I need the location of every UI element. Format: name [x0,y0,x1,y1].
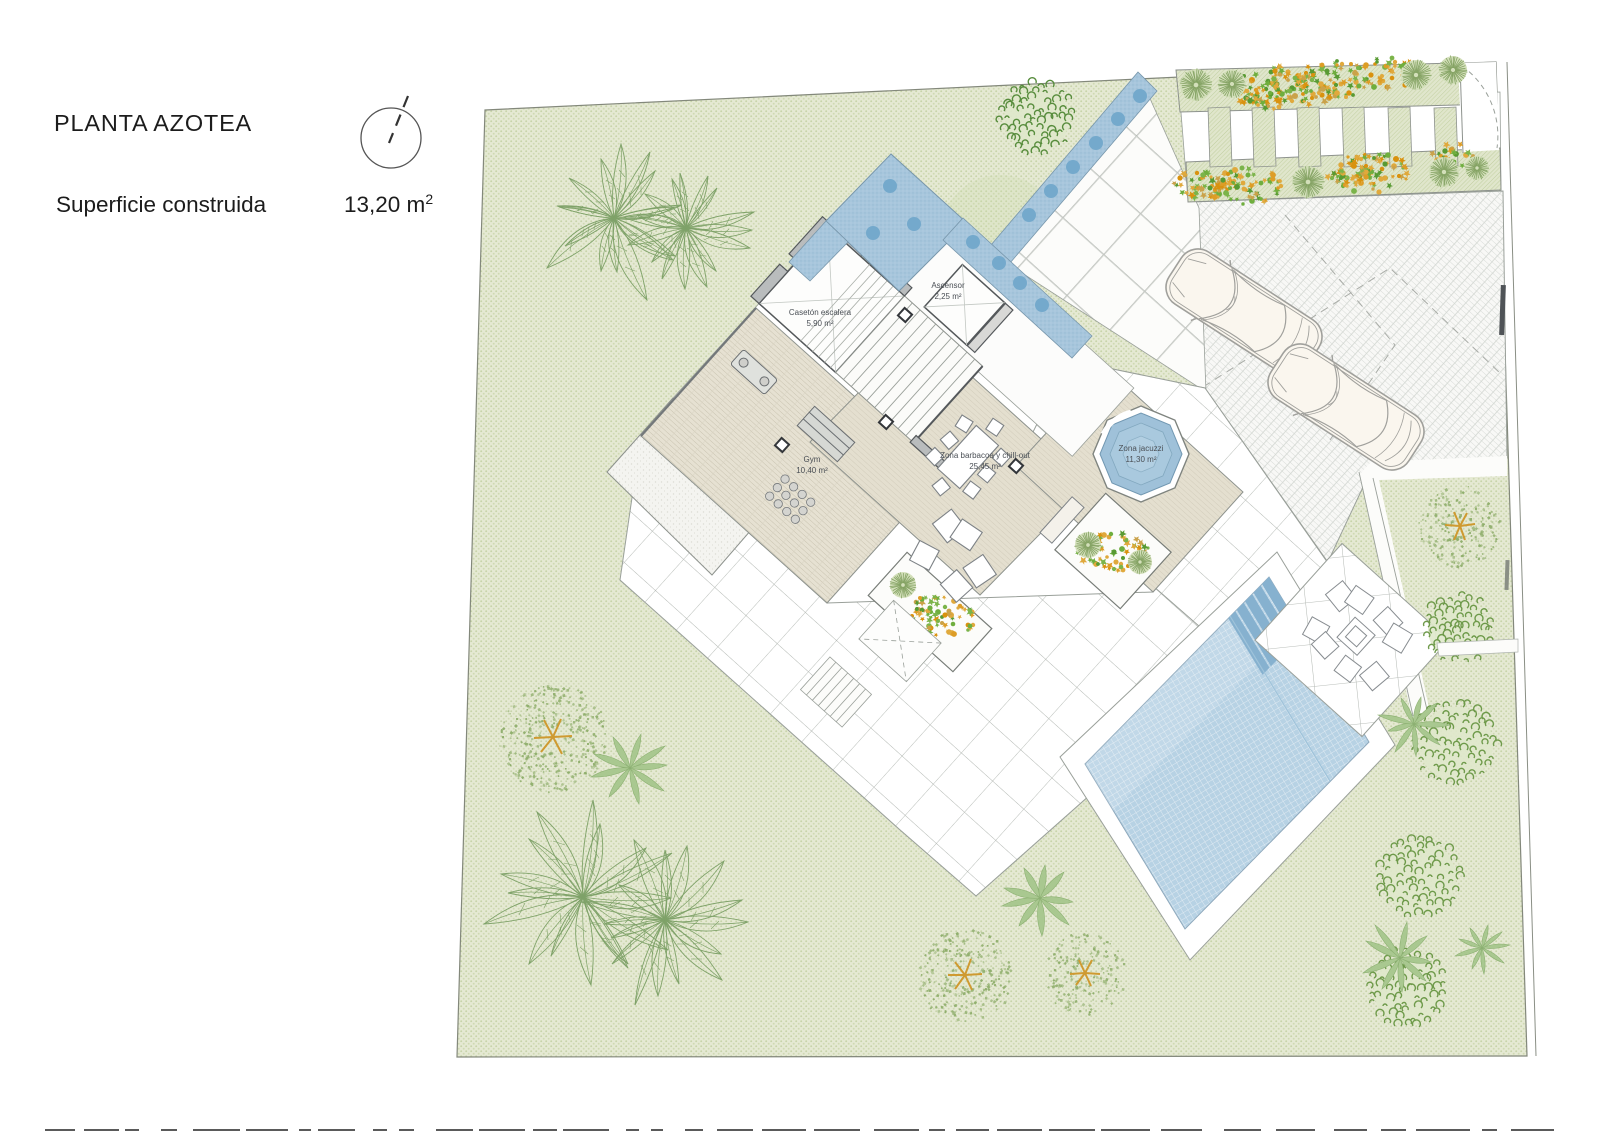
svg-text:Zona jacuzzi: Zona jacuzzi [1119,444,1164,453]
svg-text:Superficie construida: Superficie construida [56,192,267,217]
svg-text:Gym: Gym [804,455,821,464]
svg-text:10,40 m²: 10,40 m² [796,466,828,475]
svg-text:13,20 m2: 13,20 m2 [344,191,433,217]
svg-text:5,90 m²: 5,90 m² [806,319,833,328]
svg-text:25,45 m²: 25,45 m² [969,462,1001,471]
svg-text:Zona barbacoa y chill-out: Zona barbacoa y chill-out [940,451,1031,460]
svg-text:2,25 m²: 2,25 m² [934,292,961,301]
svg-text:PLANTA AZOTEA: PLANTA AZOTEA [54,110,252,136]
svg-text:Ascensor: Ascensor [931,281,965,290]
svg-text:11,30 m²: 11,30 m² [1126,455,1157,464]
svg-text:Casetón escalera: Casetón escalera [789,308,852,317]
